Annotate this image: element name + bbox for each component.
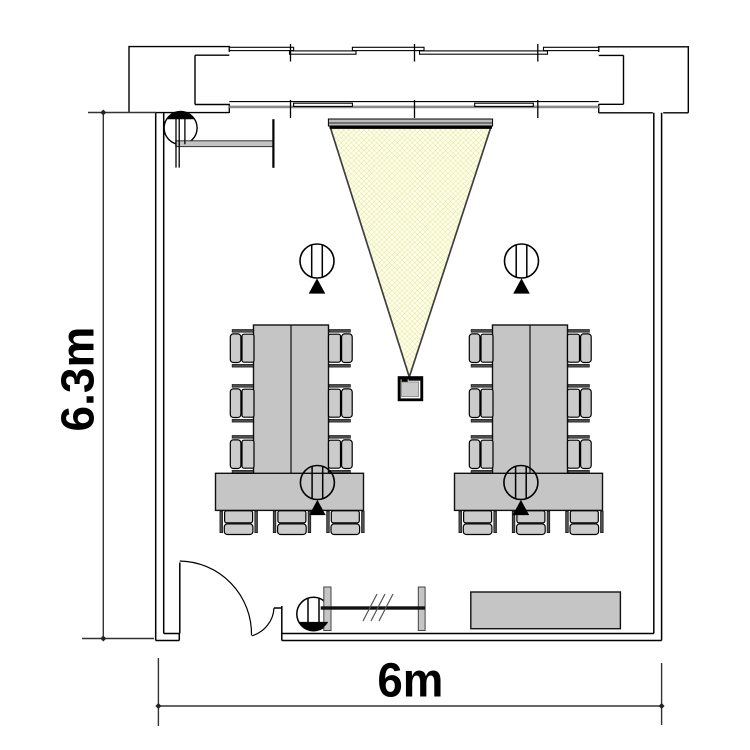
svg-text:6.3m: 6.3m [52, 327, 104, 432]
svg-text:6m: 6m [377, 654, 443, 707]
